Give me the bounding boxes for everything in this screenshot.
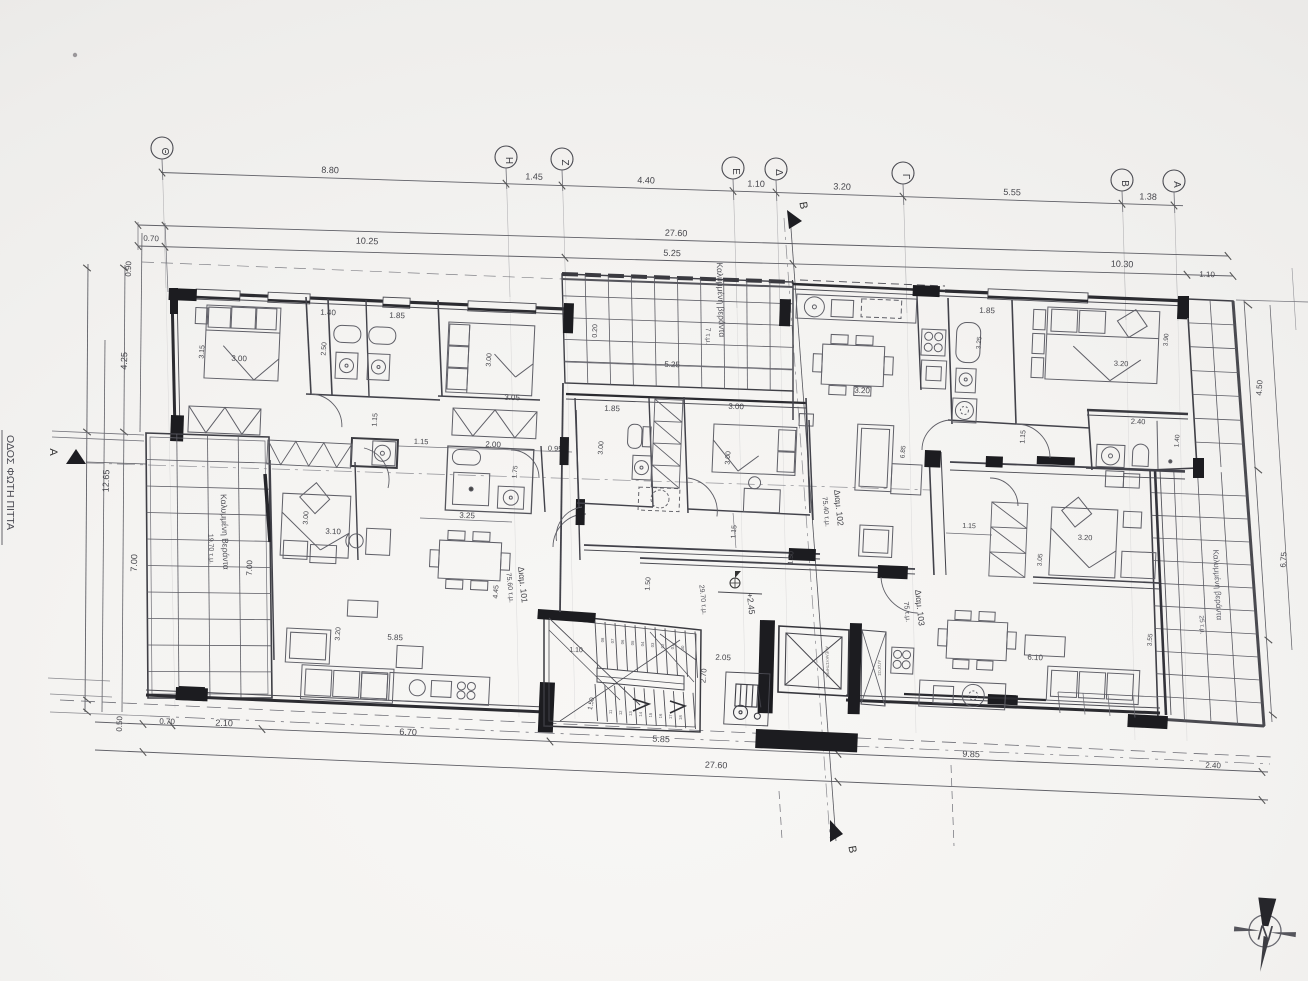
svg-text:2.70: 2.70 <box>698 668 708 683</box>
svg-text:ΑΓΩΓΟΣ: ΑΓΩΓΟΣ <box>877 660 883 676</box>
svg-text:2.40: 2.40 <box>1205 761 1221 771</box>
svg-text:1.15: 1.15 <box>414 437 429 447</box>
svg-text:3.20: 3.20 <box>1114 359 1129 369</box>
svg-text:1.10: 1.10 <box>569 647 583 654</box>
svg-text:10.30: 10.30 <box>1111 259 1134 270</box>
svg-text:Α: Α <box>1171 181 1182 188</box>
svg-text:Θ: Θ <box>159 148 170 156</box>
svg-text:3.05: 3.05 <box>1037 553 1045 566</box>
svg-text:05: 05 <box>630 640 635 646</box>
svg-text:3.10: 3.10 <box>325 527 341 537</box>
svg-text:2.40: 2.40 <box>1131 417 1146 427</box>
svg-text:27.60: 27.60 <box>665 228 688 239</box>
svg-text:3.15: 3.15 <box>199 345 207 359</box>
svg-text:3.20: 3.20 <box>1078 533 1093 543</box>
svg-text:4.40: 4.40 <box>637 175 655 186</box>
svg-text:3.25: 3.25 <box>459 511 475 521</box>
svg-text:12.65: 12.65 <box>101 469 112 492</box>
svg-text:6.10: 6.10 <box>1027 653 1044 663</box>
svg-text:02: 02 <box>660 643 665 649</box>
svg-text:A: A <box>47 448 59 456</box>
svg-text:1.38: 1.38 <box>1139 191 1157 202</box>
svg-text:19.70 τ.μ.: 19.70 τ.μ. <box>206 534 214 564</box>
svg-text:1.10: 1.10 <box>1199 270 1215 280</box>
svg-text:0.70: 0.70 <box>143 234 159 244</box>
svg-text:6.70: 6.70 <box>399 727 417 738</box>
svg-text:5.25: 5.25 <box>664 360 680 370</box>
svg-text:3.25: 3.25 <box>976 336 984 349</box>
svg-text:ΟΔΟΣ ΦΩΤΗ ΠΙΤΤΑ: ΟΔΟΣ ΦΩΤΗ ΠΙΤΤΑ <box>4 435 16 530</box>
svg-text:27.60: 27.60 <box>705 760 728 771</box>
svg-text:25 τ.μ.: 25 τ.μ. <box>1198 615 1206 634</box>
svg-text:13: 13 <box>628 710 633 716</box>
svg-text:1.10: 1.10 <box>747 179 765 190</box>
svg-text:3.90: 3.90 <box>1163 333 1171 346</box>
svg-text:Ζ: Ζ <box>559 159 570 165</box>
svg-text:Η: Η <box>503 157 514 164</box>
svg-text:1.50: 1.50 <box>645 577 653 591</box>
svg-text:1.15: 1.15 <box>372 413 380 427</box>
svg-text:06: 06 <box>620 639 625 645</box>
svg-text:07: 07 <box>610 638 615 644</box>
svg-text:1.85: 1.85 <box>389 311 405 321</box>
svg-text:5.85: 5.85 <box>652 734 670 745</box>
svg-text:1.45: 1.45 <box>525 171 543 182</box>
svg-text:1.85: 1.85 <box>979 306 995 316</box>
svg-text:01: 01 <box>670 644 675 650</box>
svg-text:5.85: 5.85 <box>387 633 403 643</box>
svg-text:0.70: 0.70 <box>159 717 175 727</box>
svg-text:3.00: 3.00 <box>725 451 733 465</box>
svg-text:15: 15 <box>648 712 653 718</box>
svg-text:1.15: 1.15 <box>962 523 976 530</box>
svg-text:Ε: Ε <box>730 168 741 175</box>
svg-text:5.55: 5.55 <box>1003 187 1021 198</box>
svg-text:3.55: 3.55 <box>1147 633 1155 646</box>
svg-text:1.75: 1.75 <box>512 465 520 478</box>
svg-text:12: 12 <box>618 710 623 716</box>
svg-text:10.25: 10.25 <box>356 236 379 247</box>
svg-text:N: N <box>1256 921 1274 945</box>
svg-text:8.80: 8.80 <box>321 165 339 176</box>
svg-text:9.85: 9.85 <box>962 749 980 760</box>
svg-text:08: 08 <box>600 637 605 643</box>
svg-text:2.50: 2.50 <box>321 342 329 356</box>
svg-text:Β: Β <box>1119 180 1130 187</box>
svg-text:17: 17 <box>668 714 673 720</box>
svg-text:5.25: 5.25 <box>663 248 681 259</box>
svg-text:3.00: 3.00 <box>598 441 606 455</box>
svg-text:0.50: 0.50 <box>115 715 125 731</box>
svg-text:3.20: 3.20 <box>833 181 851 192</box>
svg-text:1.40: 1.40 <box>1174 434 1182 447</box>
svg-text:2.05: 2.05 <box>715 653 731 663</box>
svg-text:3.00: 3.00 <box>303 511 311 525</box>
svg-text:1.40: 1.40 <box>320 308 336 318</box>
svg-text:3.05: 3.05 <box>504 393 520 403</box>
svg-text:3.00: 3.00 <box>486 353 494 367</box>
svg-text:18: 18 <box>678 714 683 720</box>
svg-text:Γ: Γ <box>900 174 911 180</box>
svg-text:1.50: 1.50 <box>788 551 796 565</box>
svg-text:0.20: 0.20 <box>592 324 599 338</box>
svg-text:03: 03 <box>650 642 655 648</box>
svg-text:3.20: 3.20 <box>854 386 870 396</box>
svg-text:4.45: 4.45 <box>493 585 501 599</box>
svg-text:6.85: 6.85 <box>900 445 908 458</box>
svg-text:7 τ.μ.: 7 τ.μ. <box>704 328 712 345</box>
svg-text:1.15: 1.15 <box>1020 430 1028 444</box>
svg-text:04: 04 <box>640 641 645 647</box>
svg-text:4.50: 4.50 <box>1254 379 1264 396</box>
svg-text:Δ: Δ <box>773 169 784 176</box>
svg-text:0.90: 0.90 <box>124 260 134 276</box>
svg-text:3.00: 3.00 <box>231 354 247 364</box>
svg-text:6.75: 6.75 <box>1278 551 1288 568</box>
svg-text:4.25: 4.25 <box>119 352 130 370</box>
svg-text:7.00: 7.00 <box>245 559 255 575</box>
svg-text:16: 16 <box>658 713 663 719</box>
svg-text:14: 14 <box>638 711 643 717</box>
svg-text:1.85: 1.85 <box>604 404 620 414</box>
svg-text:3.20: 3.20 <box>335 627 343 641</box>
svg-text:00: 00 <box>680 645 685 651</box>
svg-text:3.00: 3.00 <box>728 402 744 412</box>
svg-text:7.00: 7.00 <box>129 554 140 572</box>
